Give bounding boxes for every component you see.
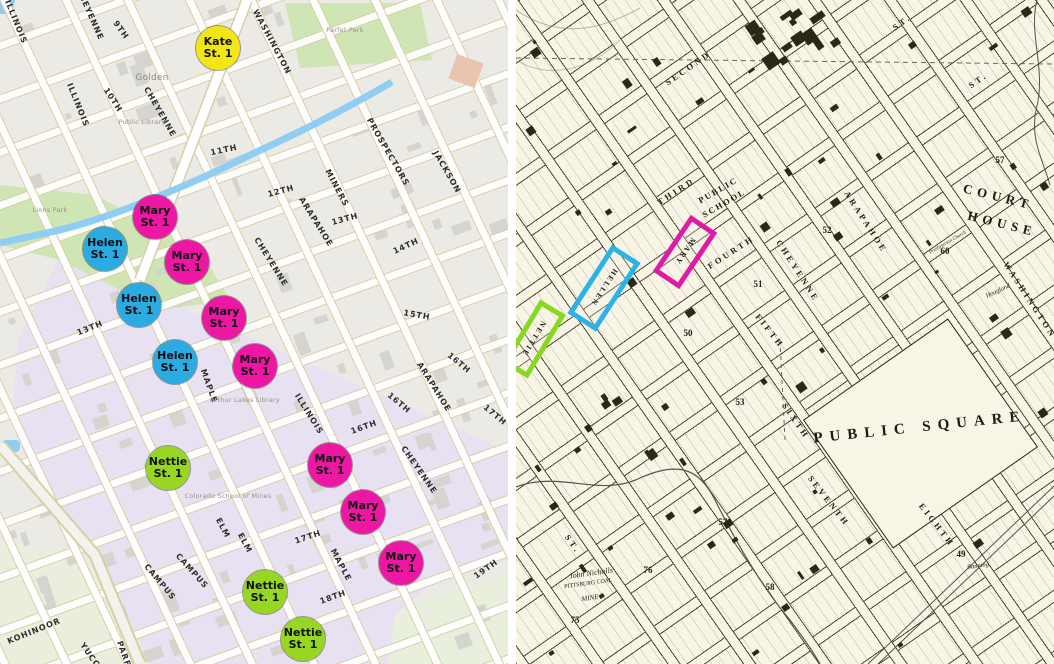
plat-building <box>601 399 612 409</box>
poi-label: Colorado School of Mines <box>185 492 272 500</box>
plat-building <box>534 465 541 472</box>
plat-building <box>759 221 771 233</box>
plat-building <box>757 193 763 200</box>
block-number: 53 <box>736 397 745 407</box>
poi-label: Golden <box>135 73 168 83</box>
poi-label: Lions Park <box>32 206 67 214</box>
plat-building <box>665 511 675 520</box>
marker-street-number: St. 1 <box>173 262 202 274</box>
map-marker-mary[interactable]: MarySt. 1 <box>202 296 246 340</box>
poi-label: Public Library <box>119 118 166 126</box>
plat-building <box>695 97 704 106</box>
plat-building <box>925 240 931 246</box>
block-number: 49 <box>957 549 966 559</box>
map-marker-mary[interactable]: MarySt. 1 <box>341 490 385 534</box>
map-marker-nettie[interactable]: NettieSt. 1 <box>243 570 287 614</box>
marker-street-number: St. 1 <box>251 592 280 604</box>
plat-building <box>819 347 825 353</box>
block-number: 52 <box>823 225 832 235</box>
highlighted-building <box>448 54 483 88</box>
highlight-rect-label: MARY <box>673 237 698 268</box>
modern-street-map[interactable]: ILLINOISCHEYENNE9THWASHINGTONILLINOIS10T… <box>0 0 508 664</box>
marker-street-number: St. 1 <box>289 639 318 651</box>
marker-street-number: St. 1 <box>241 366 270 378</box>
plat-building <box>782 41 794 52</box>
plat-building <box>865 537 872 545</box>
plat-building <box>797 571 805 581</box>
block-number: 50 <box>684 328 693 338</box>
marker-street-number: St. 1 <box>349 512 378 524</box>
historical-plat-map[interactable]: SECONDST.ST.THIRDFOURTHFIFTHSIXTHSEVENTH… <box>516 0 1054 664</box>
plat-building <box>989 313 999 323</box>
block-number: 76 <box>644 565 653 575</box>
plat-building <box>611 161 617 167</box>
plat-building <box>784 167 793 176</box>
map-marker-helen[interactable]: HelenSt. 1 <box>117 283 161 327</box>
plat-building <box>532 40 537 45</box>
block-number: 57 <box>996 155 1005 165</box>
marker-street-number: St. 1 <box>141 217 170 229</box>
plat-building <box>789 18 798 27</box>
plat-building <box>627 125 637 133</box>
plat-building <box>760 377 767 385</box>
plat-building <box>523 577 533 585</box>
plat-building <box>778 56 789 67</box>
block-number: 51 <box>754 279 763 289</box>
map-comparison-view: ILLINOISCHEYENNE9THWASHINGTONILLINOIS10T… <box>0 0 1054 664</box>
marker-street-number: St. 1 <box>161 362 190 374</box>
plat-building <box>612 396 623 407</box>
plat-building <box>1021 6 1033 18</box>
plat-building <box>549 502 560 512</box>
marker-street-number: St. 1 <box>154 468 183 480</box>
plat-building <box>972 538 984 549</box>
plat-building <box>809 10 825 24</box>
plat-building <box>1040 182 1049 192</box>
map-marker-mary[interactable]: MarySt. 1 <box>165 240 209 284</box>
plat-building <box>530 46 541 57</box>
map-marker-helen[interactable]: HelenSt. 1 <box>153 340 197 384</box>
plat-building <box>830 37 842 48</box>
map-marker-mary[interactable]: MarySt. 1 <box>308 443 352 487</box>
plat-building <box>1001 328 1013 340</box>
plat-building <box>908 40 917 49</box>
block-number: 58 <box>766 582 775 592</box>
plat-building <box>833 231 843 241</box>
marker-street-number: St. 1 <box>91 249 120 261</box>
poi-label: Parfet Park <box>326 26 363 34</box>
plat-building <box>661 403 670 412</box>
plat-building <box>731 537 738 544</box>
plat-building <box>575 209 581 215</box>
map-marker-nettie[interactable]: NettieSt. 1 <box>281 617 325 661</box>
highlight-rect-label: HELLEN <box>588 267 619 308</box>
map-marker-helen[interactable]: HelenSt. 1 <box>83 227 127 271</box>
map-marker-nettie[interactable]: NettieSt. 1 <box>146 446 190 490</box>
plat-building <box>573 446 581 454</box>
plat-building <box>707 540 716 549</box>
block-number: 75 <box>571 615 580 625</box>
plat-building <box>761 51 780 70</box>
marker-street-number: St. 1 <box>210 318 239 330</box>
plat-building <box>608 545 615 551</box>
marker-street-number: St. 1 <box>125 305 154 317</box>
plat-building <box>599 592 605 598</box>
plat-building <box>692 506 702 514</box>
marker-street-number: St. 1 <box>387 563 416 575</box>
plat-building <box>652 57 661 67</box>
plat-building <box>1009 163 1017 171</box>
map-marker-mary[interactable]: MarySt. 1 <box>133 195 177 239</box>
plat-building <box>934 204 945 214</box>
plat-building <box>622 77 633 88</box>
poi-label: Arthur Lakes Library <box>210 396 280 404</box>
plat-building <box>897 642 903 648</box>
plat-building <box>748 68 755 74</box>
plat-building <box>752 648 759 655</box>
plat-building <box>525 125 536 136</box>
plat-building <box>818 157 825 164</box>
plat-building <box>584 424 593 433</box>
plat-building <box>604 208 612 216</box>
plat-building <box>881 293 889 301</box>
plat-building <box>679 457 687 466</box>
plat-building <box>934 269 939 274</box>
plat-building <box>989 43 998 51</box>
plat-building <box>830 197 841 208</box>
map-marker-mary[interactable]: MarySt. 1 <box>379 541 423 585</box>
plat-building <box>548 650 554 656</box>
marker-street-number: St. 1 <box>316 465 345 477</box>
plat-building <box>685 308 696 318</box>
plat-building <box>809 564 820 574</box>
plat-building <box>782 603 791 611</box>
map-divider <box>508 0 516 664</box>
map-marker-mary[interactable]: MarySt. 1 <box>233 344 277 388</box>
marker-street-number: St. 1 <box>204 48 233 60</box>
plat-building <box>875 152 882 160</box>
plat-building <box>1037 408 1048 419</box>
plat-building <box>796 381 808 394</box>
map-marker-kate[interactable]: KateSt. 1 <box>196 26 240 70</box>
plat-building <box>830 104 839 113</box>
block-number: 57 <box>719 517 728 527</box>
